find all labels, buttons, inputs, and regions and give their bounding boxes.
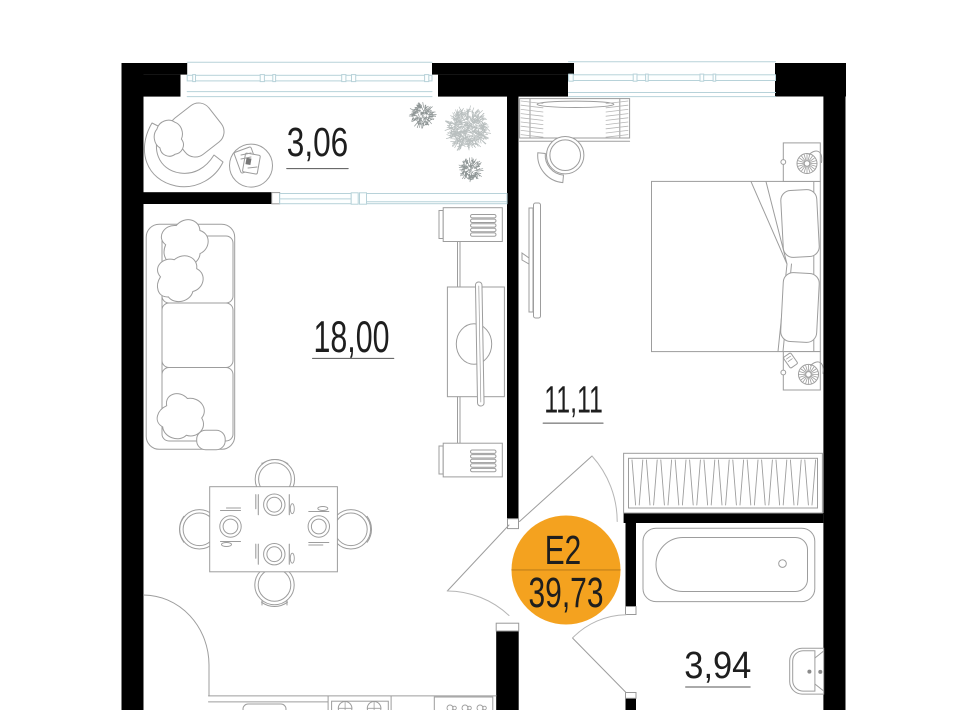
svg-text:3,06: 3,06 [287,119,349,165]
svg-text:3,94: 3,94 [684,644,751,687]
svg-text:E2: E2 [545,527,582,573]
svg-text:11,11: 11,11 [544,379,603,422]
svg-text:39,73: 39,73 [529,570,604,617]
svg-text:18,00: 18,00 [314,313,390,362]
